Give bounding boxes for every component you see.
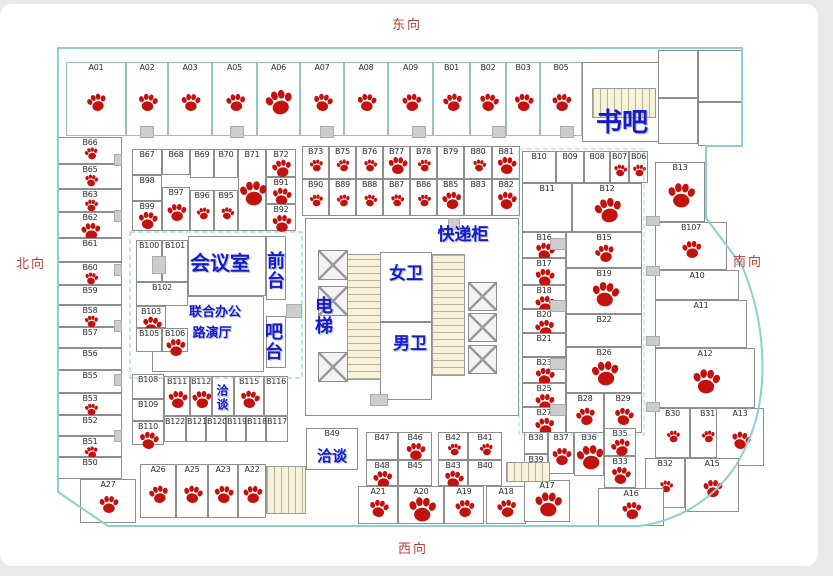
room-label: A27 [81,481,135,490]
paw-print-icon [405,442,427,461]
room-label: B49 [307,430,357,439]
room-label: B05 [541,64,581,73]
room-B105: B105 [136,328,162,352]
wall-pillar [560,126,574,138]
room-A17: A17 [524,480,570,522]
wall-pillar [140,126,154,138]
room-B81: B81 [492,146,520,179]
paw-print-icon [237,179,270,207]
wall-pillar [550,404,566,416]
room-label: B41 [469,434,501,443]
room-A25: A25 [176,464,208,518]
room-label: B15 [567,234,641,243]
room-B103: B103 [136,306,166,328]
zone-label-elevator: 电梯 [310,268,334,364]
room-A09: A09 [388,62,433,136]
wall-pillar [412,126,426,138]
room-label: B01 [434,64,469,73]
room-B48: B48 [366,460,398,486]
room [698,102,742,146]
wall-pillar [320,126,334,138]
paw-print-icon [700,429,717,444]
room-label: B28 [567,395,603,404]
room-A12: A12 [655,348,755,408]
paw-print-icon [146,483,171,506]
room-label: B116 [265,378,287,387]
paw-print-icon [83,199,98,212]
room-B62: B62 [58,212,122,238]
room-A26: A26 [140,464,176,518]
room-label: B09 [557,153,583,162]
room-B09: B09 [556,151,584,183]
room-label: B112 [191,378,211,387]
room-B87: B87 [383,179,410,216]
paw-print-icon [417,194,432,207]
room-label: A15 [686,460,738,469]
room-label: B79 [438,148,463,157]
room-B67: B67 [132,149,162,175]
room-label: B03 [507,64,539,73]
paw-print-icon [308,158,324,172]
paw-print-icon [400,92,423,112]
room-B112: B112 [190,376,212,416]
room-B50: B50 [58,457,122,479]
room-B17: B17 [522,258,566,285]
room-label: B59 [59,287,121,296]
room-B96: B96 [190,190,214,231]
room-B98: B98 [132,175,162,201]
room-label: B76 [357,148,382,157]
room-B116: B116 [264,376,288,416]
wall-pillar [646,336,660,346]
room-label: B32 [646,460,684,469]
room-label: A13 [717,410,763,419]
wall-pillar [114,430,122,442]
room-A07: A07 [300,62,344,136]
zone-label-talk-room-b113: 洽谈 [212,380,232,416]
room-label: B101 [163,242,187,251]
room-B42: B42 [438,432,468,460]
room-A22: A22 [238,464,266,518]
paw-print-icon [309,194,325,208]
paw-print-icon [470,158,487,173]
room-label: A06 [258,64,299,73]
room-label: B98 [133,177,161,186]
room-label: B68 [163,151,189,160]
room-label: B70 [215,151,237,160]
zone-label-coworking: 联合办公 [180,304,250,320]
room-B15: B15 [566,232,642,268]
room-label: B105 [137,330,161,339]
zone-label-mens-restroom: 男卫 [382,334,438,354]
room-B69: B69 [190,149,214,178]
room-B63: B63 [58,189,122,212]
room-A01: A01 [66,62,126,136]
room-label: B06 [630,153,647,162]
room-B88: B88 [356,179,383,216]
room-label: B108 [133,376,163,385]
room-B121: B121 [186,416,206,442]
room-B108: B108 [132,374,164,399]
room-B79: B79 [437,146,464,179]
room [658,50,698,98]
room-label: A03 [169,64,211,73]
wall-pillar [114,320,122,332]
room-B95: B95 [214,190,238,231]
floorplan-canvas: 东向 西向 北向 南向 A01A02A03A05A06A07A08A09B01B… [0,4,818,566]
staircase [506,462,550,482]
room-B11: B11 [522,183,572,232]
paw-print-icon [83,173,100,188]
room-B08: B08 [584,151,610,183]
room-label: B07 [611,153,628,162]
room-label: A18 [487,488,525,497]
room-B65: B65 [58,164,122,189]
paw-print-icon [551,447,573,466]
paw-print-icon [406,495,438,523]
wall-pillar [114,264,122,276]
room-B61: B61 [58,238,122,262]
room-B68: B68 [162,149,190,175]
room-label: A19 [445,488,483,497]
room-B53: B53 [58,393,122,415]
room-B115: B115 [234,376,264,416]
room-B72: B72 [266,149,296,177]
room-label: B52 [59,417,121,426]
room-label: A22 [239,466,265,475]
paw-print-icon [440,91,465,114]
room-label: A08 [345,64,387,73]
room-label: B55 [59,372,121,381]
room-B46: B46 [398,432,432,460]
paw-print-icon [166,202,189,221]
paw-print-icon [242,484,265,504]
room-label: B19 [567,270,641,279]
room-label: A07 [301,64,343,73]
room-label: B47 [367,434,397,443]
room-B122: B122 [164,416,186,442]
paw-print-icon [83,403,98,416]
paw-print-icon [665,181,697,209]
paw-print-icon [82,271,99,286]
room-label: B85 [438,181,463,190]
room-label: B86 [411,181,436,190]
elevator-shaft [468,313,497,342]
room-label: B75 [330,148,355,157]
room-B85: B85 [437,179,464,216]
paw-print-icon [335,157,353,173]
room-A08: A08 [344,62,388,136]
staircase [347,254,381,380]
paw-print-icon [84,90,110,114]
room-label: B107 [656,224,726,233]
room-A20: A20 [398,486,444,524]
wall-pillar [550,300,566,312]
zone-label-bar-counter: 吧台 [260,318,284,366]
room-B111: B111 [164,376,190,416]
room-label: B40 [469,462,501,471]
paw-print-icon [728,428,754,451]
room-label: A09 [389,64,432,73]
direction-label-south: 南向 [733,251,763,270]
paw-print-icon [592,241,618,265]
room-label: A12 [656,350,754,359]
room-B75: B75 [329,146,356,179]
room-B05: B05 [540,62,582,136]
room-B118: B118 [246,416,266,442]
room-label: B42 [439,434,467,443]
paw-print-icon [612,163,629,178]
room-B107: B107 [655,222,727,270]
room-label: B95 [215,192,237,201]
room-label: A26 [141,466,175,475]
wall-pillar [646,216,660,226]
paw-print-icon [454,498,477,517]
room-label: A05 [213,64,256,73]
room-label: B90 [303,181,328,190]
room-B02: B02 [470,62,506,136]
paw-print-icon [551,92,574,111]
zone-label-parcel-lockers: 快递柜 [412,224,514,246]
room-B33: B33 [604,456,636,488]
paw-print-icon [224,92,248,113]
wall-pillar [646,402,660,412]
paw-print-icon [612,405,637,427]
room-label: B29 [605,395,641,404]
paw-print-icon [609,464,634,486]
room-B47: B47 [366,432,398,460]
room-A06: A06 [257,62,300,136]
room-label: B80 [465,148,491,157]
room-B45: B45 [398,460,432,486]
paw-print-icon [180,92,202,111]
room-label: B96 [191,192,213,201]
room-label: B02 [471,64,505,73]
room-B41: B41 [468,432,502,460]
room-label: B115 [235,378,263,387]
paw-print-icon [588,279,622,309]
paw-print-icon [237,388,262,411]
room-B90: B90 [302,179,329,216]
paw-print-icon [212,484,235,504]
room-B58: B58 [58,305,122,327]
room-label: B122 [165,418,185,427]
room-B86: B86 [410,179,437,216]
elevator-shaft [468,282,497,311]
room-label: B57 [59,329,121,338]
room-label: B50 [59,459,121,468]
room-B60: B60 [58,262,122,285]
room-label: B111 [165,378,189,387]
room-A16: A16 [598,488,664,526]
room-B73: B73 [302,146,329,179]
room-B83: B83 [464,179,492,216]
paw-print-icon [439,190,463,212]
room [380,252,432,322]
wall-pillar [370,394,388,406]
room-A15: A15 [685,458,739,512]
room-label: B13 [656,164,704,173]
room-label: A17 [525,482,569,491]
paw-print-icon [98,494,120,513]
room-label: B88 [357,181,382,190]
room-B30: B30 [655,408,690,458]
room-B89: B89 [329,179,356,216]
paw-print-icon [680,239,703,259]
room-label: B71 [239,151,265,160]
room-B110: B110 [132,421,164,445]
elevator-shaft [468,345,497,374]
room-label: B37 [549,434,573,443]
room-label: B22 [567,316,641,325]
room-label: B12 [573,185,641,194]
room-B70: B70 [214,149,238,178]
room-B10: B10 [522,151,556,183]
room-B07: B07 [610,151,629,183]
room-A02: A02 [126,62,168,136]
paw-print-icon [271,214,293,233]
room-label: B26 [567,349,641,358]
room-label: B45 [399,462,431,471]
room-label: A25 [177,466,207,475]
room-B66: B66 [58,137,122,164]
paw-print-icon [82,145,100,161]
room-B92: B92 [266,204,296,231]
paw-print-icon [446,442,462,456]
room-label: B120 [207,418,225,427]
room-label: B61 [59,240,121,249]
room-label: A16 [599,490,663,499]
zone-label-talk-room-b49: 洽谈 [308,446,356,466]
paw-print-icon [180,483,205,506]
room-B40: B40 [468,460,502,486]
room-B59: B59 [58,285,122,305]
paw-print-icon [386,156,409,175]
paw-print-icon [389,193,405,207]
room-A10: A10 [655,270,739,300]
room-B12: B12 [572,183,642,232]
floorplan-card: 东向 西向 北向 南向 A01A02A03A05A06A07A08A09B01B… [0,4,818,566]
room-B13: B13 [655,162,705,222]
room-label: B82 [493,181,519,190]
room-label: B11 [523,185,571,194]
paw-print-icon [367,497,392,519]
room-B109: B109 [132,399,164,421]
room-label: B83 [465,181,491,190]
paw-print-icon [476,91,501,114]
paw-print-icon [573,404,599,427]
room-B76: B76 [356,146,383,179]
wall-pillar [646,266,660,276]
room [698,50,742,102]
paw-print-icon [218,205,236,221]
room-label: B21 [523,335,565,344]
zone-label-book-bar: 书吧 [584,104,660,142]
staircase [432,254,465,376]
wall-pillar [230,126,244,138]
zone-label-womens-restroom: 女卫 [378,264,434,284]
paw-print-icon [356,92,379,112]
room-A21: A21 [358,486,398,524]
zone-label-front-desk: 前台 [262,244,286,298]
zone-label-roadshow-hall: 路演厅 [182,325,242,341]
room-B01: B01 [433,62,470,136]
paw-print-icon [190,389,214,410]
room-label: B118 [247,418,265,427]
room-label: A11 [656,302,746,311]
room-label: B10 [523,153,555,162]
direction-label-west: 西向 [398,538,428,557]
room-label: A23 [209,466,237,475]
room-B22: B22 [566,314,642,347]
room-label: B89 [330,181,355,190]
direction-label-east: 东向 [392,14,422,33]
room-B82: B82 [492,179,520,216]
paw-print-icon [137,429,162,451]
room-label: A21 [359,488,397,497]
wall-pillar [114,210,122,222]
room-A18: A18 [486,486,526,524]
room-A05: A05 [212,62,257,136]
room-label: B109 [133,401,163,410]
wall-pillar [114,374,122,386]
room-label: B38 [525,434,547,443]
direction-label-north: 北向 [16,253,46,272]
room-B20: B20 [522,309,566,333]
paw-print-icon [136,210,160,231]
room-A03: A03 [168,62,212,136]
room-B97: B97 [162,187,190,231]
wall-pillar [114,154,122,166]
paw-print-icon [416,158,432,172]
room-label: A01 [67,64,125,73]
room-label: B08 [585,153,609,162]
room-B102: B102 [136,282,188,306]
room-A27: A27 [80,479,136,523]
room-label: B73 [303,148,328,157]
room-B55: B55 [58,370,122,393]
paw-print-icon [495,190,519,212]
room-B80: B80 [464,146,492,179]
room-label: A10 [656,272,738,281]
room-B21: B21 [522,333,566,357]
wall-pillar [492,126,506,138]
room-label: B36 [575,434,603,443]
room-B37: B37 [548,432,574,474]
room-B52: B52 [58,415,122,436]
room-B29: B29 [604,393,642,433]
room-label: B78 [411,148,436,157]
paw-print-icon [362,193,379,209]
room-B119: B119 [226,416,246,442]
paw-print-icon [495,155,518,175]
room-B43: B43 [438,460,468,486]
paw-print-icon [495,497,520,519]
room-label: B67 [133,151,161,160]
room-A23: A23 [208,464,238,518]
room-B38: B38 [524,432,548,454]
paw-print-icon [362,158,379,173]
paw-print-icon [195,206,212,221]
room-label: A02 [127,64,167,73]
room-label: B121 [187,418,205,427]
paw-print-icon [573,442,607,472]
room-B03: B03 [506,62,540,136]
paw-print-icon [666,429,681,442]
paw-print-icon [632,163,647,176]
room-B56: B56 [58,348,122,370]
room-B99: B99 [132,201,162,231]
